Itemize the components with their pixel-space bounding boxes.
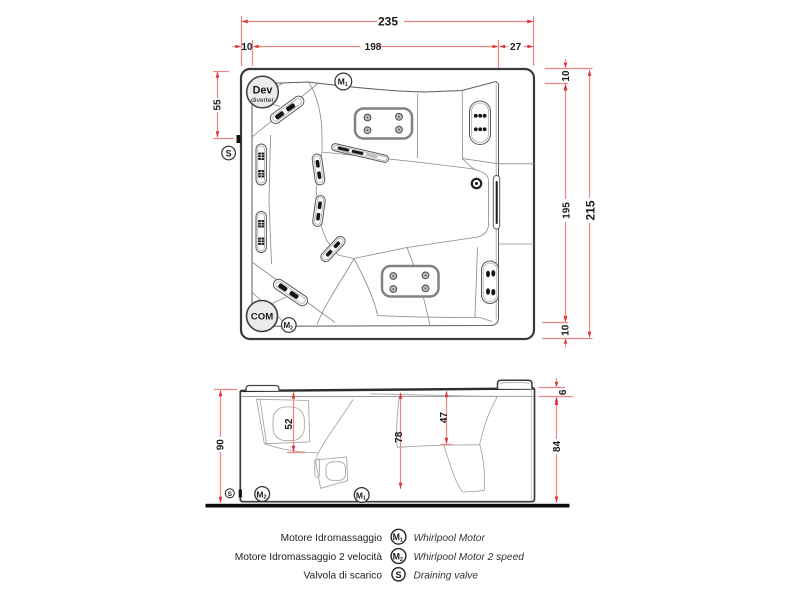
svg-text:78: 78	[394, 431, 405, 443]
svg-text:198: 198	[365, 42, 382, 53]
svg-text:10: 10	[560, 324, 571, 336]
svg-text:Whirlpool Motor: Whirlpool Motor	[414, 533, 486, 544]
svg-text:6: 6	[558, 389, 569, 395]
svg-text:47: 47	[439, 412, 450, 424]
svg-text:27: 27	[510, 42, 522, 53]
svg-text:diverter: diverter	[251, 97, 274, 104]
svg-text:S: S	[226, 149, 232, 159]
svg-text:235: 235	[378, 14, 398, 28]
svg-text:52: 52	[284, 418, 295, 430]
svg-text:S: S	[228, 491, 233, 498]
svg-text:55: 55	[213, 99, 224, 111]
svg-text:S: S	[395, 570, 401, 580]
svg-text:90: 90	[215, 439, 226, 451]
svg-text:Whirlpool Motor 2 speed: Whirlpool Motor 2 speed	[414, 552, 525, 563]
svg-text:215: 215	[583, 200, 597, 220]
svg-text:10: 10	[241, 42, 253, 53]
svg-text:Dev: Dev	[253, 85, 273, 97]
svg-text:Motore Idromassaggio: Motore Idromassaggio	[281, 533, 383, 544]
svg-text:COM: COM	[251, 311, 273, 322]
svg-text:Motore Idromassaggio 2 velocit: Motore Idromassaggio 2 velocità	[235, 552, 383, 563]
svg-text:10: 10	[561, 70, 572, 82]
svg-text:195: 195	[561, 202, 572, 219]
svg-text:Valvola di scarico: Valvola di scarico	[303, 570, 382, 581]
svg-text:Draining valve: Draining valve	[414, 570, 479, 581]
svg-text:84: 84	[552, 441, 563, 453]
